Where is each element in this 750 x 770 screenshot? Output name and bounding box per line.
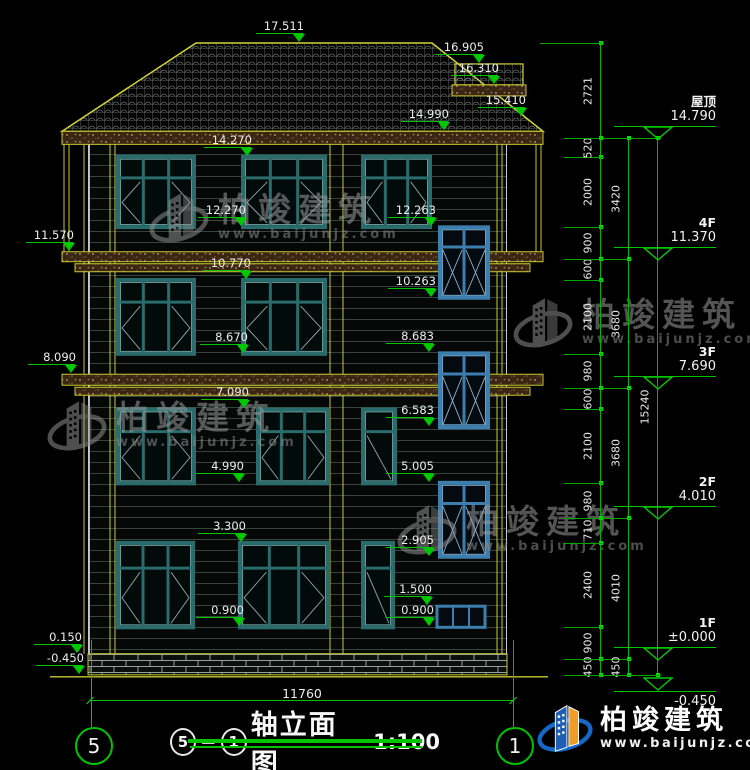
level-marker-triangle [423, 618, 435, 626]
level-marker-triangle [73, 666, 85, 674]
dimension-value: 2100 [582, 303, 595, 331]
dimension-extension-line [564, 354, 604, 355]
dimension-extension-line [564, 518, 632, 519]
title-name: 轴立面图 [251, 703, 357, 770]
level-marker-label: -0.450 [26, 651, 84, 665]
level-marker-label: 8.090 [18, 350, 76, 364]
dimension-value: 3420 [610, 185, 623, 213]
level-marker-triangle [237, 345, 249, 353]
title-underline-thin [190, 746, 422, 748]
floor-marker-triangle [643, 247, 673, 261]
floor-marker-text: 2F4.010 [616, 475, 716, 504]
dimension-value: 15240 [639, 389, 652, 424]
floor-name: 1F [616, 616, 716, 630]
level-marker-label: 10.770 [193, 256, 251, 270]
dimension-value: 2721 [582, 77, 595, 105]
level-marker-triangle [438, 122, 450, 130]
floor-marker-text: 屋顶14.790 [616, 95, 716, 124]
dimension-value: 2400 [582, 571, 595, 599]
dimension-layer: 17.51116.90516.31015.41014.99014.27012.2… [0, 0, 750, 770]
level-marker-triangle [423, 548, 435, 556]
dimension-extension-line [564, 627, 604, 628]
dimension-value: 600 [582, 259, 595, 280]
dimension-value: 3680 [610, 310, 623, 338]
level-marker-triangle [423, 474, 435, 482]
floor-marker-triangle [643, 506, 673, 520]
level-marker-triangle [238, 400, 250, 408]
title-underline [188, 739, 422, 743]
level-marker-label: 5.005 [376, 459, 434, 473]
level-marker-triangle [233, 618, 245, 626]
dimension-extension-line [564, 483, 604, 484]
axis-line-5 [91, 640, 92, 727]
axis-bubble-5: 5 [75, 727, 113, 765]
floor-marker-triangle [643, 677, 673, 691]
level-marker-triangle [423, 418, 435, 426]
floor-marker-text: 3F7.690 [616, 345, 716, 374]
level-marker-label: 2.905 [376, 533, 434, 547]
axis-bubble-1: 1 [496, 727, 534, 765]
dimension-extension-line [564, 543, 604, 544]
floor-level-value: 4.010 [616, 489, 716, 504]
level-marker-label: 15.410 [468, 93, 526, 107]
dimension-value: 600 [582, 388, 595, 409]
level-marker-triangle [425, 218, 437, 226]
dimension-value: 520 [582, 137, 595, 158]
floor-level-value: 14.790 [616, 109, 716, 124]
level-marker-label: 0.150 [24, 630, 82, 644]
floor-name: 屋顶 [616, 95, 716, 109]
elevation-drawing-canvas: 柏竣建筑 www.baijunjz.com 柏竣建筑 www.baijunjz.… [0, 0, 750, 770]
floor-level-value: ±0.000 [616, 630, 716, 645]
floor-name: 3F [616, 345, 716, 359]
level-marker-triangle [488, 76, 500, 84]
dimension-value: 900 [582, 232, 595, 253]
level-marker-label: 8.670 [190, 330, 248, 344]
level-marker-label: 4.990 [186, 459, 244, 473]
level-marker-triangle [233, 474, 245, 482]
level-marker-label: 11.570 [16, 228, 74, 242]
level-marker-triangle [235, 218, 247, 226]
level-marker-triangle [425, 289, 437, 297]
dimension-value: 3680 [610, 439, 623, 467]
level-marker-triangle [423, 344, 435, 352]
floor-name: 2F [616, 475, 716, 489]
level-marker-label: 14.270 [194, 133, 252, 147]
dimension-extension-line [540, 43, 604, 44]
level-marker-label: 16.905 [426, 40, 484, 54]
floor-marker-text: 1F±0.000 [616, 616, 716, 645]
level-marker-label: 8.683 [376, 329, 434, 343]
floor-marker-triangle [643, 376, 673, 390]
dimension-extension-line [564, 280, 604, 281]
level-marker-label: 12.263 [378, 203, 436, 217]
level-marker-triangle [240, 271, 252, 279]
level-marker-label: 10.263 [378, 274, 436, 288]
level-marker-triangle [65, 365, 77, 373]
level-marker-label: 3.300 [188, 519, 246, 533]
dimension-value: 900 [582, 633, 595, 654]
level-marker-triangle [235, 534, 247, 542]
level-marker-label: 14.990 [391, 107, 449, 121]
dimension-extension-line [564, 259, 632, 260]
dimension-value: 4010 [610, 574, 623, 602]
floor-marker-triangle [643, 126, 673, 140]
dimension-extension-line [564, 409, 604, 410]
level-marker-label: 0.900 [186, 603, 244, 617]
dimension-value: 710 [582, 520, 595, 541]
dimension-extension-line [564, 227, 604, 228]
level-marker-label: 1.500 [374, 582, 432, 596]
floor-name: 4F [616, 216, 716, 230]
floor-level-value: 7.690 [616, 359, 716, 374]
dimension-value: 2000 [582, 178, 595, 206]
level-marker-label: 0.900 [376, 603, 434, 617]
floor-marker-text: 4F11.370 [616, 216, 716, 245]
bottom-dimension-label: 11760 [272, 686, 332, 701]
floor-marker-triangle [643, 647, 673, 661]
dimension-value: 2100 [582, 432, 595, 460]
level-marker-triangle [293, 34, 305, 42]
company-logo-icon [536, 692, 594, 764]
axis-line-1 [513, 640, 514, 727]
dimension-extension-line [564, 388, 632, 389]
floor-level-value: 11.370 [616, 230, 716, 245]
level-marker-triangle [515, 108, 527, 116]
level-marker-label: 17.511 [246, 19, 304, 33]
level-marker-triangle [63, 243, 75, 251]
dimension-value: 980 [582, 490, 595, 511]
level-marker-label: 16.310 [441, 61, 499, 75]
level-marker-label: 6.583 [376, 403, 434, 417]
company-logo-brand: 柏竣建筑 [600, 706, 750, 736]
level-marker-label: 7.090 [191, 385, 249, 399]
level-marker-triangle [241, 148, 253, 156]
level-marker-label: 12.270 [188, 203, 246, 217]
company-logo: 柏竣建筑 www.baijunjz.com [536, 692, 750, 764]
dimension-value: 980 [582, 361, 595, 382]
drawing-title: 5 − 1 轴立面图 1:100 [170, 703, 440, 770]
company-logo-url: www.baijunjz.com [600, 736, 750, 751]
dimension-extension-line [593, 675, 661, 676]
